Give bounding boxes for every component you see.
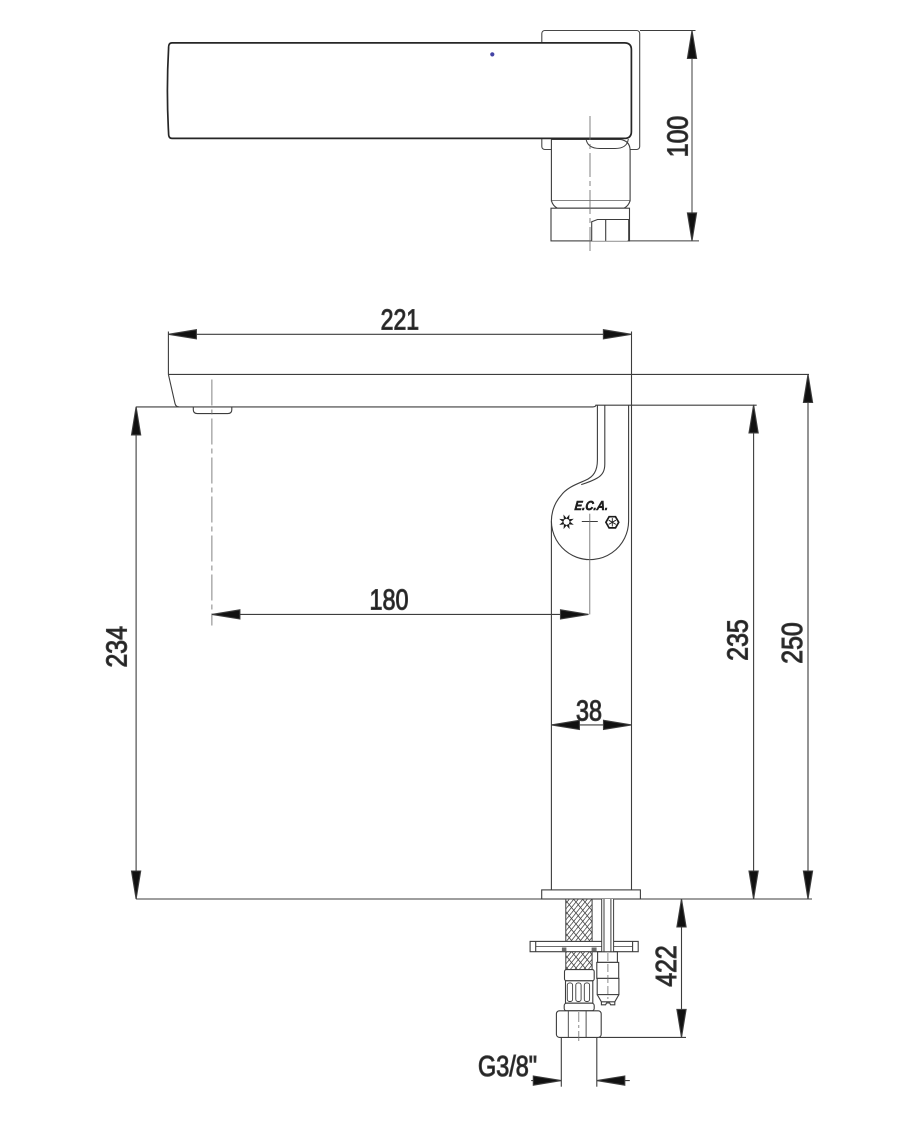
svg-text:422: 422 <box>651 945 683 987</box>
svg-text:180: 180 <box>370 584 409 616</box>
svg-text:100: 100 <box>663 116 695 158</box>
svg-text:38: 38 <box>576 695 602 727</box>
svg-text:221: 221 <box>381 304 420 336</box>
svg-text:G3/8": G3/8" <box>478 1051 537 1083</box>
svg-text:250: 250 <box>777 622 809 664</box>
svg-text:E.C.A.: E.C.A. <box>574 498 609 513</box>
svg-text:234: 234 <box>102 626 134 668</box>
svg-text:235: 235 <box>723 619 755 661</box>
